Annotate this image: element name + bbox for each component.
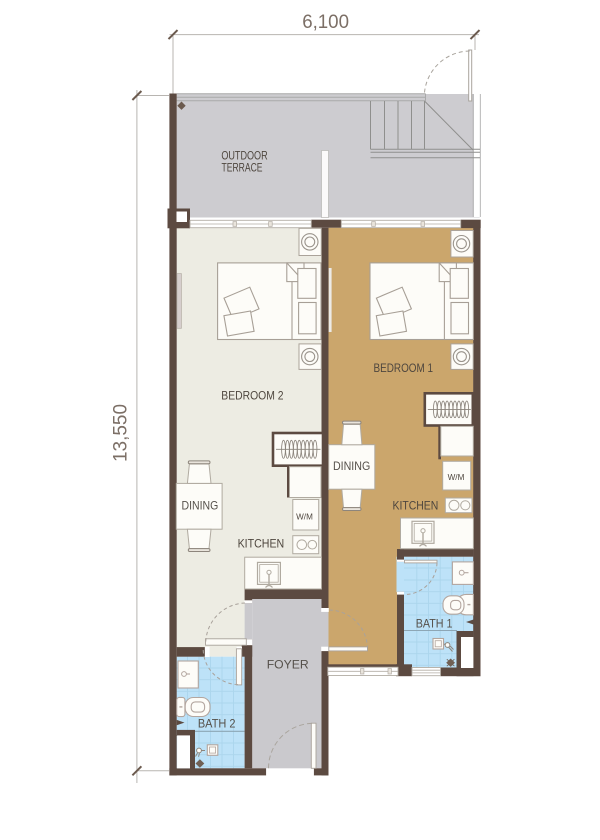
svg-text:KITCHEN: KITCHEN <box>238 536 285 550</box>
svg-text:KITCHEN: KITCHEN <box>393 498 439 512</box>
svg-text:W/M: W/M <box>296 513 313 522</box>
svg-text:W/M: W/M <box>448 473 465 482</box>
svg-text:BATH 2: BATH 2 <box>198 717 236 731</box>
svg-text:6,100: 6,100 <box>302 11 349 33</box>
svg-text:BEDROOM 1: BEDROOM 1 <box>374 361 434 375</box>
svg-text:DINING: DINING <box>333 459 370 473</box>
svg-text:TERRACE: TERRACE <box>222 161 263 175</box>
svg-text:FOYER: FOYER <box>267 657 309 671</box>
svg-text:13,550: 13,550 <box>110 404 132 462</box>
svg-text:DINING: DINING <box>182 499 219 513</box>
svg-text:BEDROOM 2: BEDROOM 2 <box>221 388 283 402</box>
svg-text:BATH 1: BATH 1 <box>416 616 453 630</box>
